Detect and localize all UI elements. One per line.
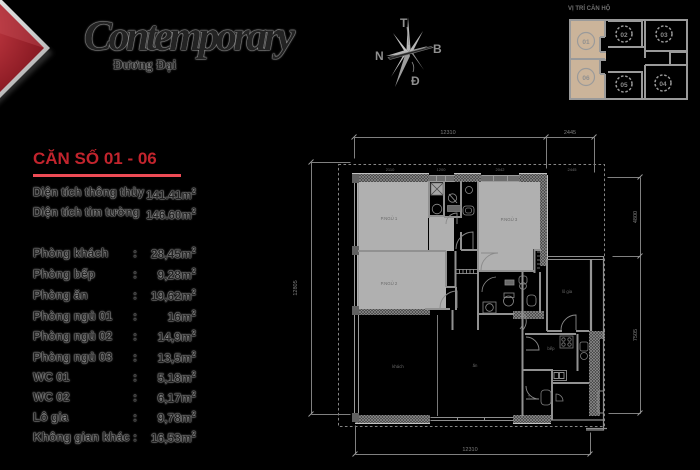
svg-text:P.NGỦ 3: P.NGỦ 3 bbox=[501, 217, 518, 222]
svg-text:2445: 2445 bbox=[568, 167, 578, 172]
svg-text:12310: 12310 bbox=[462, 447, 477, 453]
svg-text:bếp: bếp bbox=[547, 346, 555, 351]
svg-text:P.NGỦ 1: P.NGỦ 1 bbox=[381, 216, 398, 221]
svg-text:lô gia: lô gia bbox=[562, 289, 573, 294]
svg-text:12805: 12805 bbox=[293, 280, 299, 295]
svg-text:2110: 2110 bbox=[386, 167, 395, 172]
svg-text:1200: 1200 bbox=[437, 167, 447, 172]
svg-text:7505: 7505 bbox=[633, 329, 639, 341]
svg-text:ăn: ăn bbox=[473, 363, 478, 368]
svg-text:2042: 2042 bbox=[496, 167, 506, 172]
svg-text:T: T bbox=[528, 394, 531, 399]
svg-text:12310: 12310 bbox=[440, 130, 455, 136]
svg-text:khách: khách bbox=[392, 364, 404, 369]
svg-text:4800: 4800 bbox=[633, 211, 639, 223]
svg-text:P.NGỦ 2: P.NGỦ 2 bbox=[381, 281, 398, 286]
svg-text:2445: 2445 bbox=[564, 130, 576, 136]
